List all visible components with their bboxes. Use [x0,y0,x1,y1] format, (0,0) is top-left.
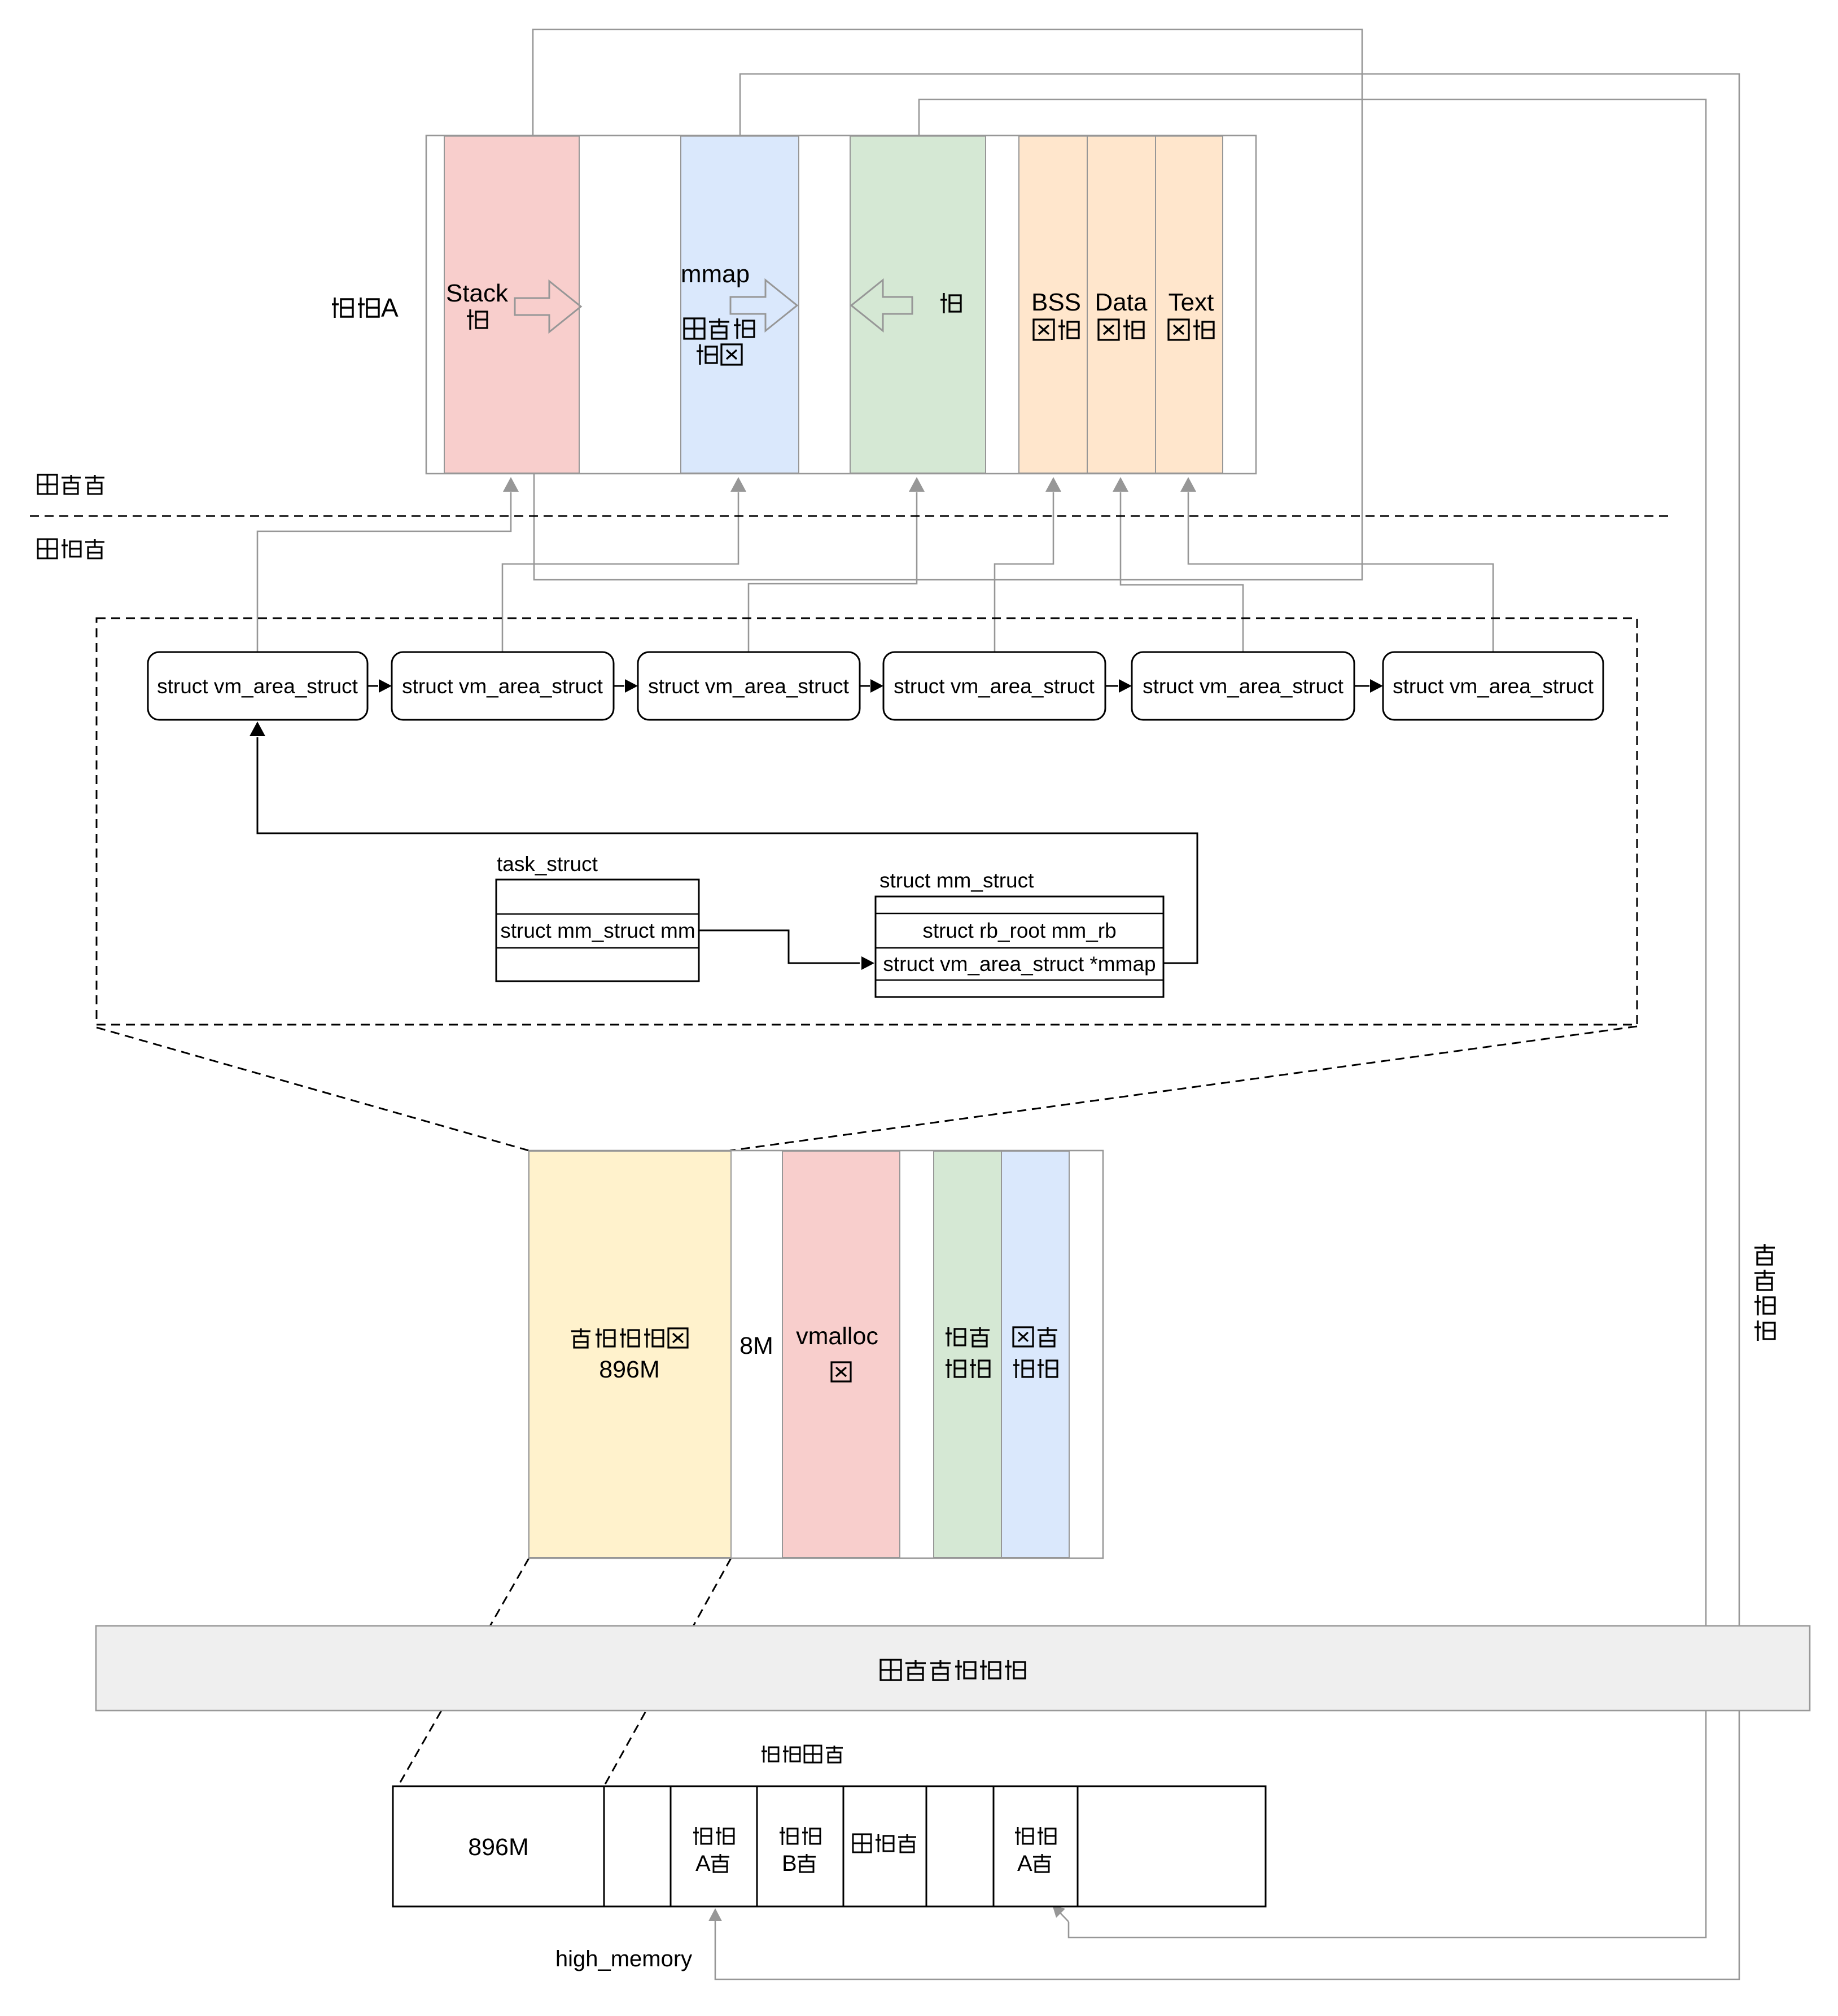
svg-text:struct mm_struct mm: struct mm_struct mm [500,919,695,942]
svg-text:A: A [695,1851,711,1876]
svg-text:896M: 896M [468,1834,529,1861]
svg-text:struct vm_area_struct: struct vm_area_struct [894,675,1095,698]
svg-text:A: A [1017,1851,1032,1876]
svg-text:struct vm_area_struct: struct vm_area_struct [402,675,603,698]
svg-text:struct vm_area_struct: struct vm_area_struct [157,675,358,698]
svg-text:BSS: BSS [1031,288,1081,316]
svg-text:8M: 8M [739,1332,773,1359]
svg-text:Data: Data [1095,288,1148,316]
svg-text:task_struct: task_struct [497,852,598,876]
svg-text:struct vm_area_struct: struct vm_area_struct [648,675,849,698]
svg-text:Stack: Stack [446,279,509,307]
svg-text:struct vm_area_struct: struct vm_area_struct [1393,675,1594,698]
svg-text:struct mm_struct: struct mm_struct [879,869,1034,892]
svg-text:struct vm_area_struct *mmap: struct vm_area_struct *mmap [883,952,1156,976]
svg-text:mmap: mmap [681,260,750,288]
svg-text:896M: 896M [599,1356,660,1383]
svg-text:A: A [381,293,399,322]
svg-text:B: B [782,1851,797,1876]
svg-text:Text: Text [1169,288,1214,316]
svg-text:struct vm_area_struct: struct vm_area_struct [1143,675,1344,698]
svg-text:vmalloc: vmalloc [796,1323,878,1350]
svg-text:high_memory: high_memory [555,1947,692,1971]
svg-text:struct rb_root mm_rb: struct rb_root mm_rb [922,919,1116,942]
